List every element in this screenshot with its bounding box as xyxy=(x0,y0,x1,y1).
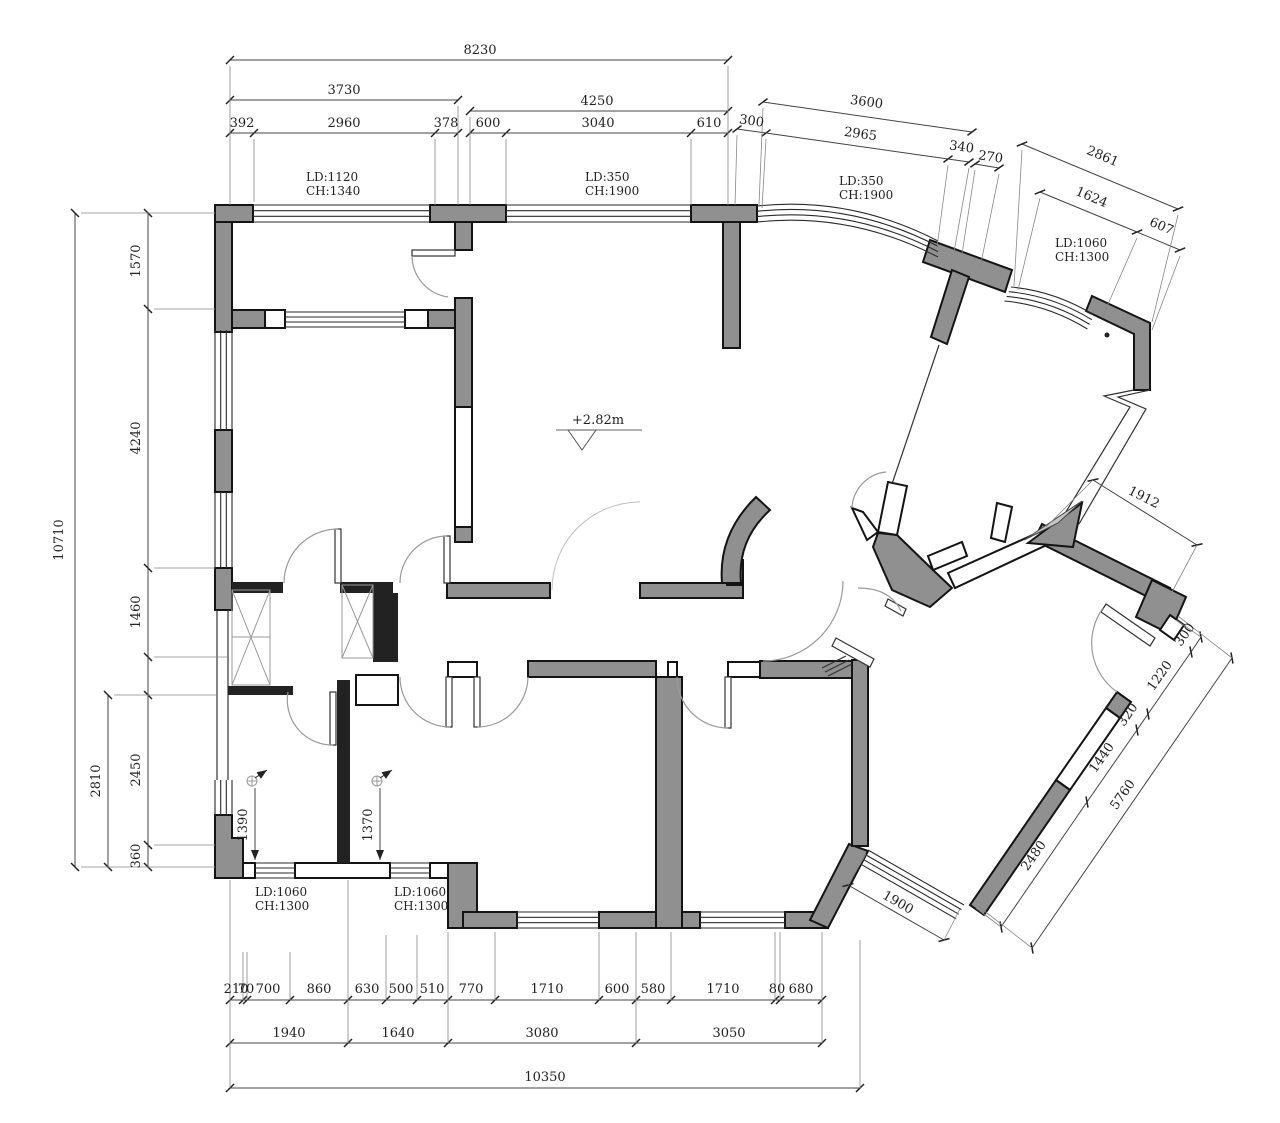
window-label: CH:1300 xyxy=(1055,250,1109,264)
dimension-label: 500 xyxy=(389,982,414,997)
dimension-label: 1710 xyxy=(530,982,563,997)
entry-vestibule-walls xyxy=(822,482,1082,676)
window-label: CH:1900 xyxy=(839,188,893,202)
shaft-hatched xyxy=(232,585,373,685)
dimension-label: 5760 xyxy=(1107,777,1138,813)
window-label: LD:1060 xyxy=(394,885,446,899)
dimension-label: 10350 xyxy=(524,1070,565,1085)
dimension-label: 3050 xyxy=(712,1026,745,1041)
dimension-label: 4240 xyxy=(129,421,144,454)
floorplan-sheet: 8230373042503922960378600304061036003002… xyxy=(0,0,1280,1123)
dimension-label: 1912 xyxy=(1125,484,1161,512)
level-mark-symbol xyxy=(556,430,642,450)
level-mark: +2.82m xyxy=(572,413,624,428)
dimension-label: 2810 xyxy=(89,764,104,797)
dimension-label: 700 xyxy=(256,982,281,997)
dimension-label: 630 xyxy=(355,982,380,997)
dimension-label: 1370 xyxy=(361,808,376,841)
window-label: LD:1120 xyxy=(306,170,358,184)
dimension-label: 600 xyxy=(476,116,501,131)
ceiling-point-symbols xyxy=(247,770,392,786)
dimension-label: 1710 xyxy=(706,982,739,997)
dimension-label: 1460 xyxy=(129,595,144,628)
dimension-label: 510 xyxy=(420,982,445,997)
dimension-label: 1624 xyxy=(1073,184,1109,211)
dimension-label: 607 xyxy=(1147,215,1176,239)
dimension-label: 70 xyxy=(238,982,255,997)
dimension-label: 10710 xyxy=(52,519,67,560)
dimension-label: 2861 xyxy=(1084,143,1120,170)
dimension-label: 770 xyxy=(459,982,484,997)
dimension-label: 378 xyxy=(434,116,459,131)
window-label: LD:1060 xyxy=(255,885,307,899)
dimension-label: 580 xyxy=(641,982,666,997)
window-label: LD:350 xyxy=(839,174,884,188)
dimension-label: 3730 xyxy=(327,83,360,98)
dimension-label: 80 xyxy=(769,982,786,997)
window-label: CH:1900 xyxy=(585,184,639,198)
dimension-label: 3080 xyxy=(525,1026,558,1041)
dimension-label: 300 xyxy=(738,112,765,130)
dimension-label: 610 xyxy=(697,116,722,131)
dimension-label: 2960 xyxy=(327,116,360,131)
plan-dot xyxy=(1105,333,1110,338)
dimension-label: 392 xyxy=(230,116,255,131)
window-label: CH:1300 xyxy=(394,899,448,913)
dimension-label: 4250 xyxy=(580,94,613,109)
dimension-label: 3040 xyxy=(581,116,614,131)
dimension-label: 860 xyxy=(307,982,332,997)
window-label: LD:350 xyxy=(585,170,630,184)
dimension-label: 2965 xyxy=(843,125,878,144)
floorplan-canvas: 8230373042503922960378600304061036003002… xyxy=(0,0,1280,1123)
dimension-label: 680 xyxy=(789,982,814,997)
dimension-label: 8230 xyxy=(463,43,496,58)
window-label: CH:1340 xyxy=(306,184,360,198)
dimension-label: 1390 xyxy=(236,808,251,841)
window-label: LD:1060 xyxy=(1055,236,1107,250)
dimension-label: 600 xyxy=(605,982,630,997)
dimension-label: 340 xyxy=(948,138,975,156)
dimension-label: 270 xyxy=(977,148,1004,166)
dimension-label: 1940 xyxy=(272,1026,305,1041)
dimension-label: 3600 xyxy=(849,93,884,112)
window-label: CH:1300 xyxy=(255,899,309,913)
dimension-label: 2450 xyxy=(129,753,144,786)
dimension-label: 1570 xyxy=(129,244,144,277)
dimension-label: 360 xyxy=(129,844,144,869)
dimension-label: 1640 xyxy=(381,1026,414,1041)
dimension-label: 1220 xyxy=(1144,658,1175,694)
